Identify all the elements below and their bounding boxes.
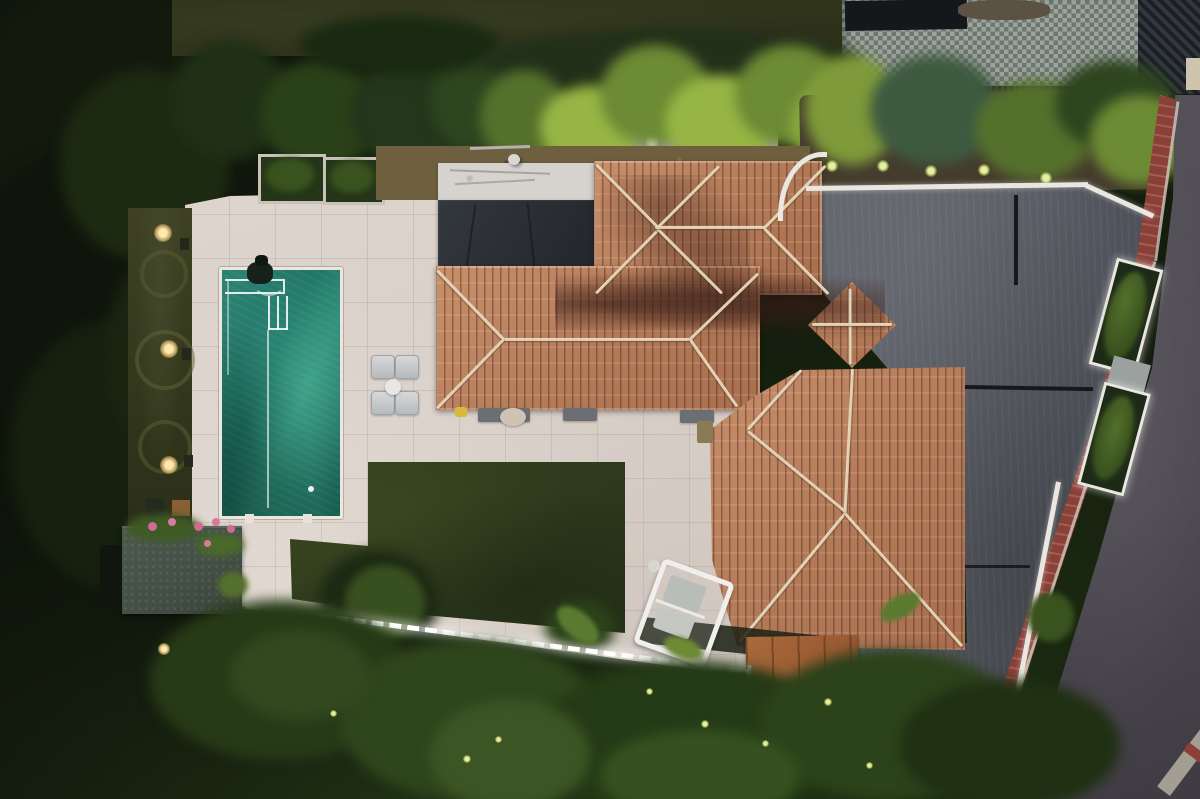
pool-lane-line <box>267 330 269 508</box>
garden-light <box>158 643 170 655</box>
wood-bench <box>172 500 190 516</box>
roof-ridge <box>655 226 765 229</box>
roof-ridge <box>503 338 693 341</box>
pool-cleaner-part <box>255 255 268 266</box>
wall-bush <box>1028 592 1074 642</box>
grass-circle <box>135 330 195 390</box>
garden-glint <box>762 740 769 747</box>
bed-light <box>925 165 937 177</box>
pool-ladder-line <box>268 328 288 330</box>
planter-shrub <box>330 161 374 193</box>
pink-flowers <box>212 518 220 526</box>
pool-ladder-line <box>268 296 270 330</box>
roof-ridge <box>812 323 892 326</box>
side-table <box>385 379 401 395</box>
pink-flowers <box>194 522 203 531</box>
garden-glint <box>824 698 832 706</box>
drain-cover <box>303 514 312 523</box>
flower-foliage <box>126 514 201 542</box>
bed-light <box>877 160 889 172</box>
wood-mat <box>697 421 713 443</box>
garden-glint <box>646 688 653 695</box>
bed-light <box>826 160 838 172</box>
planter-shrub <box>266 158 314 192</box>
pool-cleaner-hose <box>252 266 286 296</box>
pink-flowers <box>204 540 211 547</box>
neighbor-wall <box>1186 58 1200 90</box>
flower-foliage <box>196 534 244 556</box>
doormat <box>563 408 597 421</box>
yellow-object <box>455 407 467 417</box>
hedge <box>300 15 500 75</box>
drain-cover <box>245 514 254 523</box>
grass-circle <box>140 250 188 298</box>
solar-canopy <box>438 200 596 271</box>
swing-stand <box>648 560 660 572</box>
pool-light-dot <box>308 486 314 492</box>
garden-highlight <box>430 700 590 799</box>
garden-light <box>154 224 172 242</box>
garden-light <box>160 340 178 358</box>
sun-lounger <box>395 355 419 379</box>
pool-ladder-line <box>277 296 279 330</box>
pool-edge-line <box>227 279 229 375</box>
garden-glint <box>701 720 709 728</box>
sun-lounger <box>371 355 395 379</box>
expansion-joint <box>1014 195 1018 285</box>
roof-vent <box>508 154 520 165</box>
bed-light <box>978 164 990 176</box>
pink-flowers <box>168 518 176 526</box>
patio-chair <box>500 408 526 426</box>
pink-flowers <box>148 522 157 531</box>
neighbor-building-corner <box>845 0 968 31</box>
sun-lounger <box>395 391 419 415</box>
aerial-photo <box>0 0 1200 799</box>
garden-light <box>160 456 178 474</box>
rock-feature <box>958 0 1050 20</box>
pool-ladder-line <box>286 296 288 330</box>
garden-glint <box>463 755 471 763</box>
edge-mark <box>182 348 191 360</box>
garden-glint <box>495 736 502 743</box>
garden-bush <box>900 680 1120 799</box>
dirt-strip <box>376 176 438 200</box>
dark-object <box>100 545 122 603</box>
bright-bush <box>218 572 248 598</box>
garden-highlight <box>230 630 370 720</box>
garden-glint <box>866 762 873 769</box>
roof-ridge <box>849 289 852 365</box>
pink-flowers <box>227 525 235 533</box>
edge-mark <box>180 238 189 250</box>
edge-mark <box>184 455 193 467</box>
swing-cushion <box>662 574 707 613</box>
pool <box>219 267 343 519</box>
garden-glint <box>330 710 337 717</box>
